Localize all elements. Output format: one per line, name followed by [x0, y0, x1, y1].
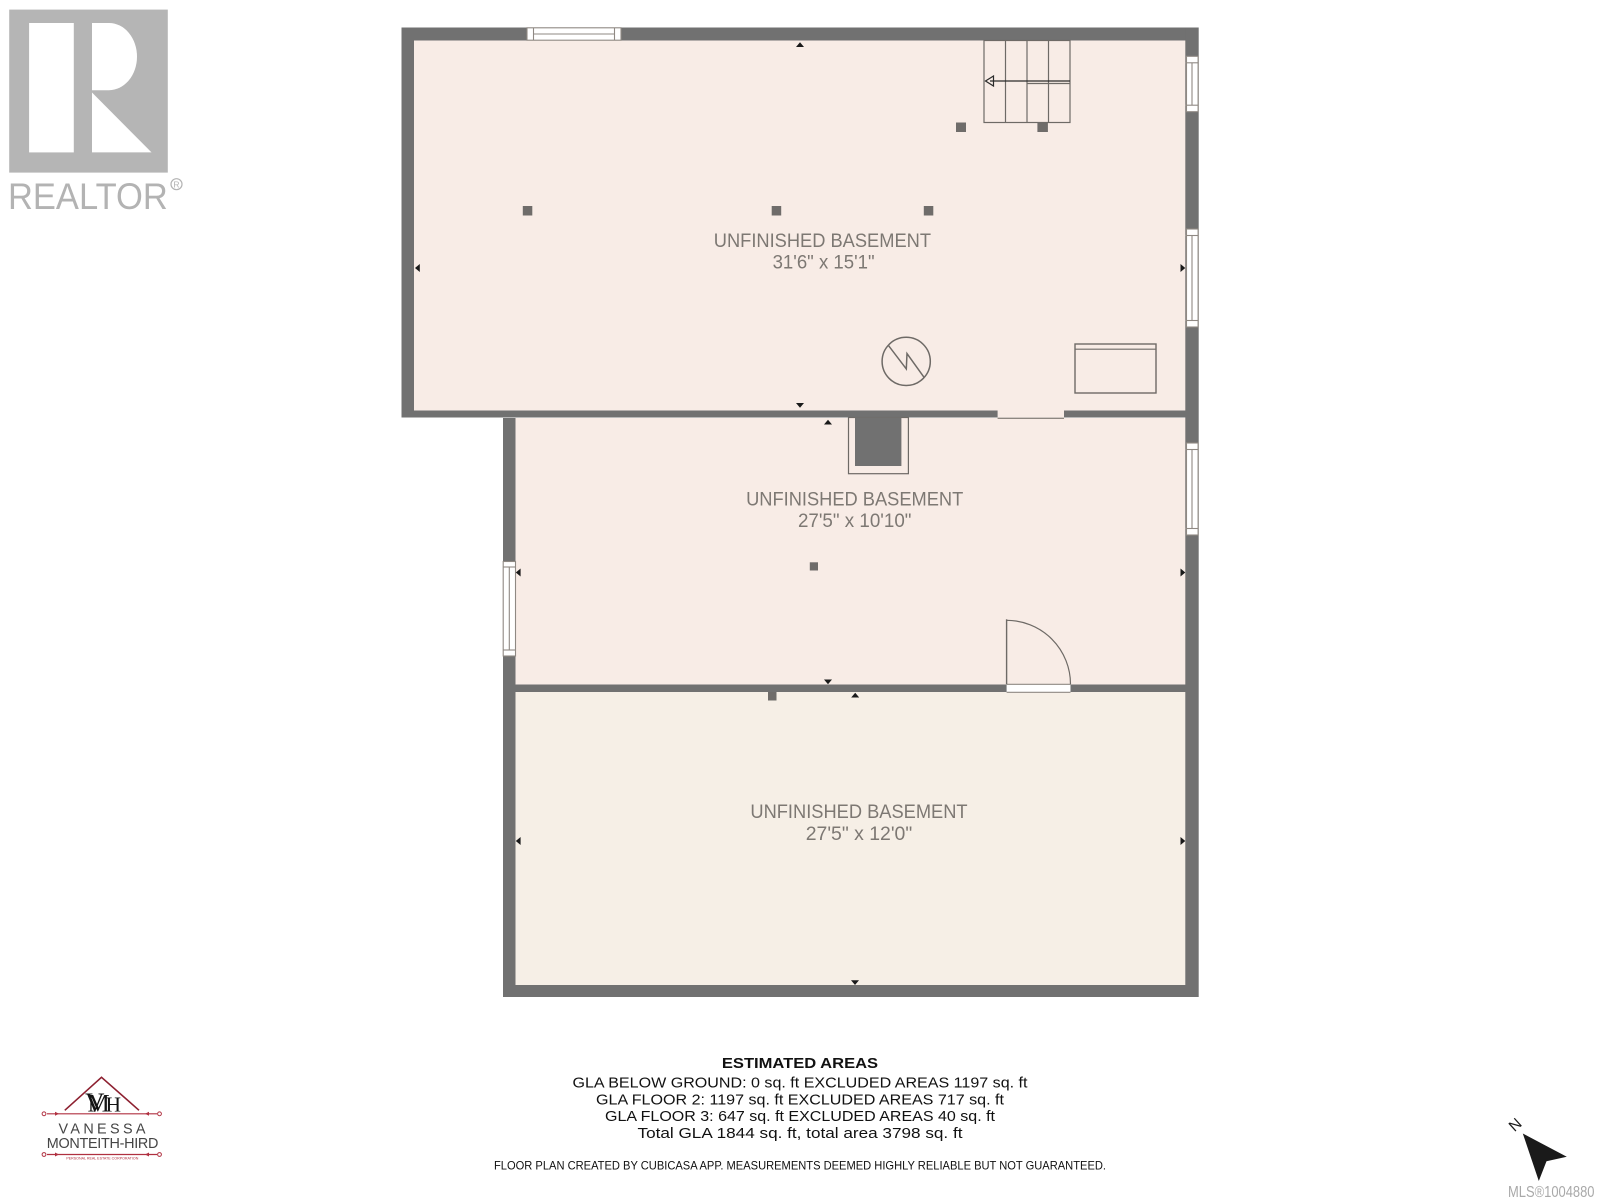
- svg-text:UNFINISHED BASEMENT: UNFINISHED BASEMENT: [750, 802, 967, 823]
- svg-text:GLA FLOOR 2: 1197 sq. ft EXCLU: GLA FLOOR 2: 1197 sq. ft EXCLUDED AREAS …: [596, 1093, 1004, 1109]
- svg-text:GLA FLOOR 3: 647 sq. ft EXCLUD: GLA FLOOR 3: 647 sq. ft EXCLUDED AREAS 4…: [605, 1109, 995, 1125]
- svg-text:MLS®1004880: MLS®1004880: [1508, 1184, 1595, 1200]
- svg-text:R: R: [173, 179, 179, 189]
- svg-text:GLA BELOW GROUND: 0 sq. ft EXC: GLA BELOW GROUND: 0 sq. ft EXCLUDED AREA…: [573, 1076, 1028, 1092]
- svg-text:27'5" x 10'10": 27'5" x 10'10": [798, 511, 912, 532]
- svg-text:ESTIMATED AREAS: ESTIMATED AREAS: [722, 1056, 878, 1072]
- svg-text:Total GLA 1844 sq. ft, total a: Total GLA 1844 sq. ft, total area 3798 s…: [638, 1126, 963, 1142]
- svg-text:UNFINISHED BASEMENT: UNFINISHED BASEMENT: [746, 490, 963, 511]
- svg-text:31'6" x 15'1": 31'6" x 15'1": [773, 252, 875, 273]
- svg-text:UNFINISHED BASEMENT: UNFINISHED BASEMENT: [714, 231, 931, 252]
- svg-text:27'5" x 12'0": 27'5" x 12'0": [806, 824, 913, 845]
- svg-text:H: H: [106, 1093, 122, 1117]
- svg-text:REALTOR: REALTOR: [8, 175, 168, 217]
- svg-text:MONTEITH-HIRD: MONTEITH-HIRD: [47, 1136, 159, 1152]
- svg-text:PERSONAL REAL ESTATE CORPORATI: PERSONAL REAL ESTATE CORPORATION: [66, 1155, 138, 1160]
- svg-text:FLOOR PLAN CREATED BY CUBICASA: FLOOR PLAN CREATED BY CUBICASA APP. MEAS…: [494, 1159, 1106, 1173]
